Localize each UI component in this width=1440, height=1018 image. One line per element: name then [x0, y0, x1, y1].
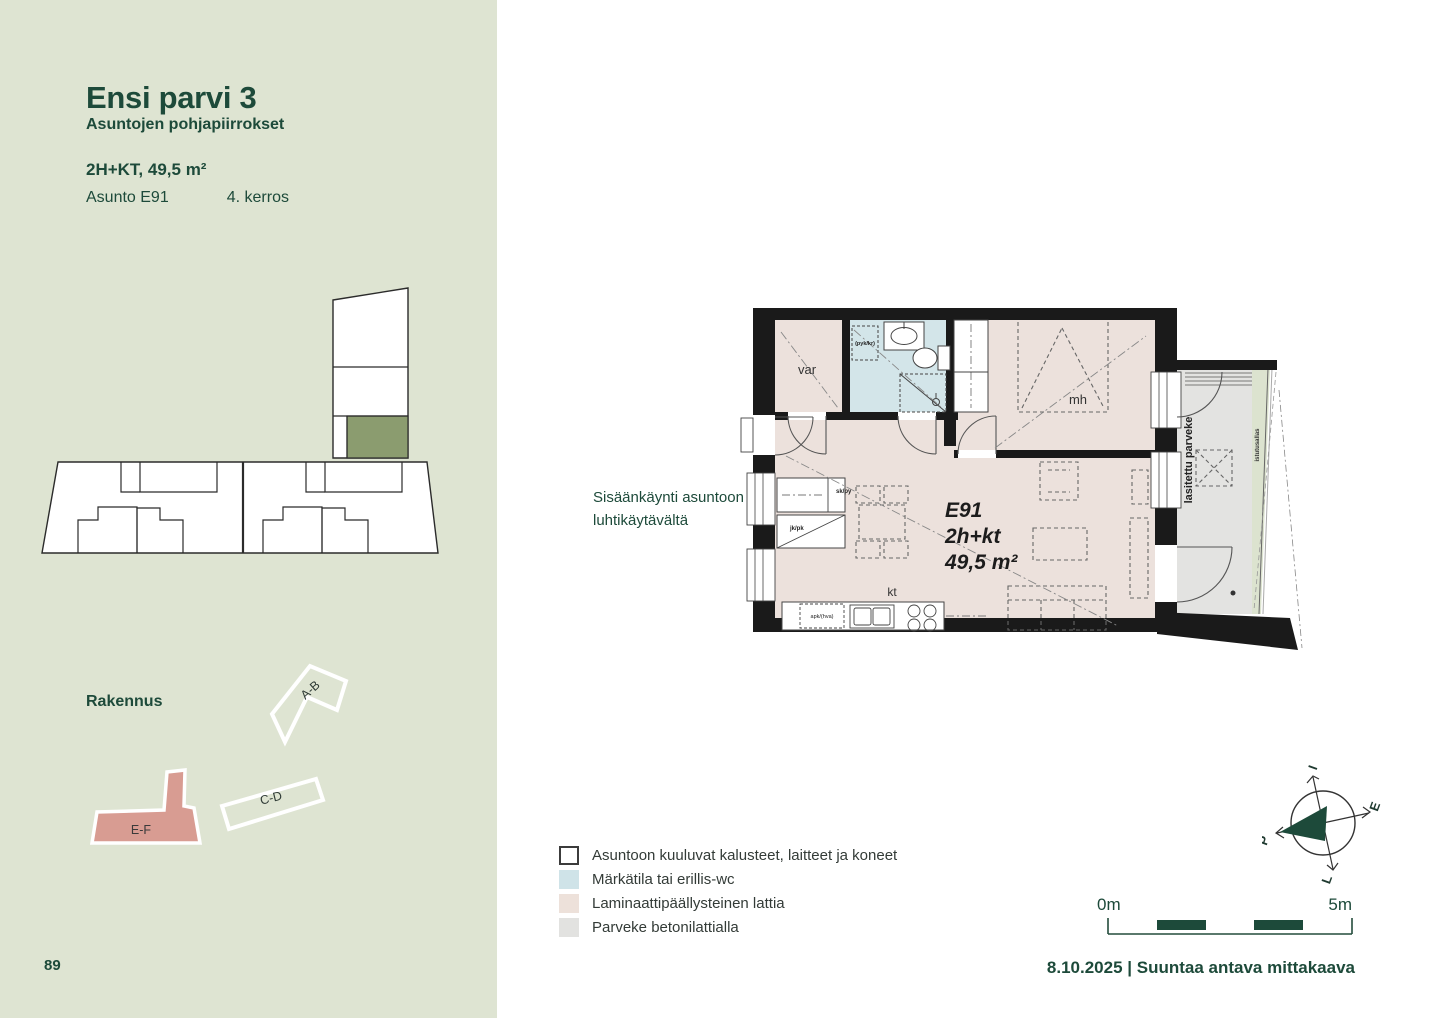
entry-note-line1: Sisäänkäynti asuntoon — [593, 486, 744, 509]
plan-unit-id: E91 — [945, 499, 982, 522]
apartment-id: Asunto E91 — [86, 189, 169, 206]
page-number: 89 — [44, 957, 61, 974]
scale-segment — [1254, 920, 1303, 930]
plan-unit-type: 2h+kt — [944, 525, 1001, 548]
sidebar: Ensi parvi 3 Asuntojen pohjapiirrokset 2… — [0, 0, 497, 1018]
page-subtitle: Asuntojen pohjapiirrokset — [86, 116, 284, 134]
room-label-storage: var — [798, 362, 817, 377]
scale-bar: 0m 5m — [1085, 885, 1370, 945]
compass-letter-east: I — [1305, 763, 1320, 772]
building-section-diagram — [38, 283, 442, 559]
compass-north-needle — [1280, 806, 1327, 841]
scale-end-label: 5m — [1328, 895, 1352, 914]
balcony-label: lasitettu parveke — [1183, 417, 1195, 504]
entry-note-line2: luhtikäytävältä — [593, 509, 744, 532]
floor-plan: sk/py jk/pk apk/(hva) — [740, 290, 1310, 665]
page-title: Ensi parvi 3 — [86, 80, 256, 116]
legend-swatch-fixtures — [559, 846, 579, 865]
planter-label: istutusallas — [1255, 428, 1261, 462]
legend-label: Laminaattipäällysteinen lattia — [592, 895, 785, 912]
scale-segment — [1157, 920, 1206, 930]
legend-row: Märkätila tai erillis-wc — [559, 867, 897, 891]
apartment-id-row: Asunto E914. kerros — [86, 189, 289, 207]
legend-row: Asuntoon kuuluvat kalusteet, laitteet ja… — [559, 843, 897, 867]
brochure-page: Ensi parvi 3 Asuntojen pohjapiirrokset 2… — [0, 0, 1440, 1018]
room-label-kitchen: kt — [887, 585, 897, 599]
entry-note: Sisäänkäynti asuntoon luhtikäytävältä — [593, 486, 744, 532]
bedroom-closet — [954, 320, 988, 412]
dishwasher-label: apk/(hva) — [811, 614, 834, 620]
apartment-type: 2H+KT, 49,5 m² — [86, 160, 206, 180]
building-location-map: A-B C-D E-F — [80, 655, 365, 890]
scale-start-label: 0m — [1097, 895, 1121, 914]
compass-letter-north: P — [1262, 834, 1272, 848]
legend-row: Parveke betonilattialla — [559, 915, 897, 939]
room-label-bedroom: mh — [1069, 392, 1087, 407]
legend-label: Asuntoon kuuluvat kalusteet, laitteet ja… — [592, 847, 897, 864]
highlighted-unit-cell — [347, 416, 408, 458]
footer-caption: 8.10.2025 | Suuntaa antava mittakaava — [1000, 958, 1355, 978]
floor-label: 4. kerros — [227, 189, 289, 206]
legend-label: Parveke betonilattialla — [592, 919, 739, 936]
compass-rose: P I E L — [1262, 760, 1392, 885]
washer-reservation-label: (pyk/kr) — [855, 341, 875, 347]
building-shape-ab — [272, 666, 346, 742]
legend-swatch-laminate — [559, 894, 579, 913]
fridge-freezer-label: jk/pk — [789, 526, 804, 532]
legend-label: Märkätila tai erillis-wc — [592, 871, 735, 888]
legend: Asuntoon kuuluvat kalusteet, laitteet ja… — [559, 843, 897, 939]
compass-letter-west: L — [1318, 873, 1335, 885]
cleaning-closet-label: sk/py — [836, 489, 852, 495]
scale-bar-line — [1108, 918, 1352, 934]
legend-row: Laminaattipäällysteinen lattia — [559, 891, 897, 915]
legend-swatch-balcony — [559, 918, 579, 937]
plan-unit-area: 49,5 m² — [944, 551, 1018, 574]
balcony-drain-dot — [1231, 591, 1236, 596]
legend-swatch-wet-room — [559, 870, 579, 889]
building-label-ef: E-F — [131, 823, 152, 837]
